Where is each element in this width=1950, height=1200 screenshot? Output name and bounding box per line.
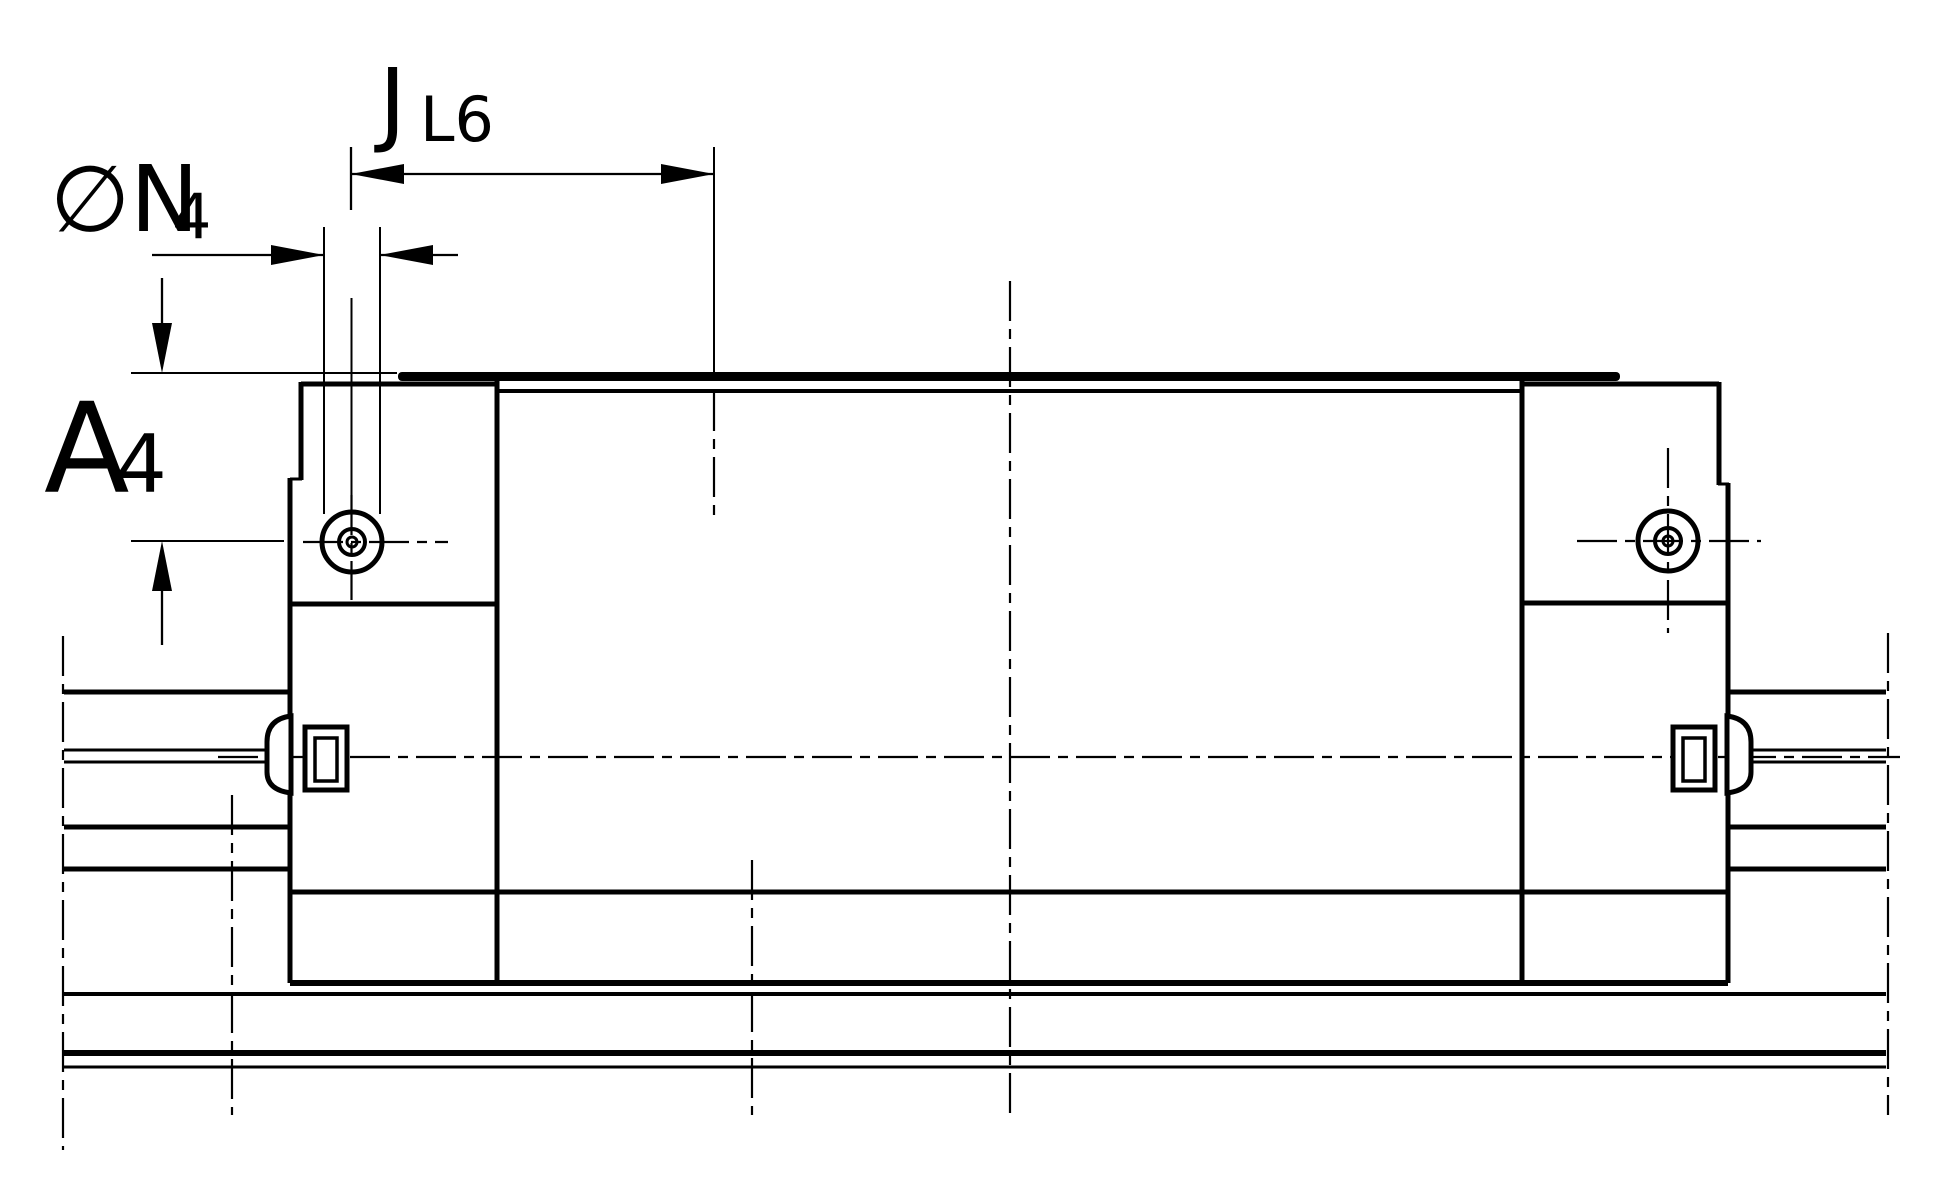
drawing-page: J L6 ∅N 4 A 4: [0, 0, 1950, 1200]
label-jl6-main: J: [374, 49, 406, 156]
dimension-jl6: [351, 147, 714, 377]
label-a4-subscript: 4: [116, 418, 167, 511]
label-n4-subscript: 4: [172, 180, 211, 253]
lube-port-right-inner: [1683, 738, 1705, 781]
grease-nipple-left: [267, 716, 291, 793]
n4-arrow-left: [271, 245, 324, 265]
a4-arrow-up: [152, 541, 172, 591]
center-lines: [63, 281, 1888, 1150]
a4-arrow-down: [152, 323, 172, 373]
grease-nipple-right: [1727, 716, 1751, 793]
lube-port-left-inner: [315, 738, 337, 781]
dimension-a4: [131, 278, 397, 645]
n4-arrow-right: [380, 245, 433, 265]
linear-guide-carriage-drawing: J L6 ∅N 4 A 4: [0, 0, 1950, 1200]
jl6-arrow-left: [351, 164, 404, 184]
dimension-n4: [152, 227, 458, 514]
jl6-arrow-right: [661, 164, 714, 184]
label-jl6-subscript: L6: [420, 83, 494, 156]
labels: J L6 ∅N 4 A 4: [44, 49, 494, 522]
